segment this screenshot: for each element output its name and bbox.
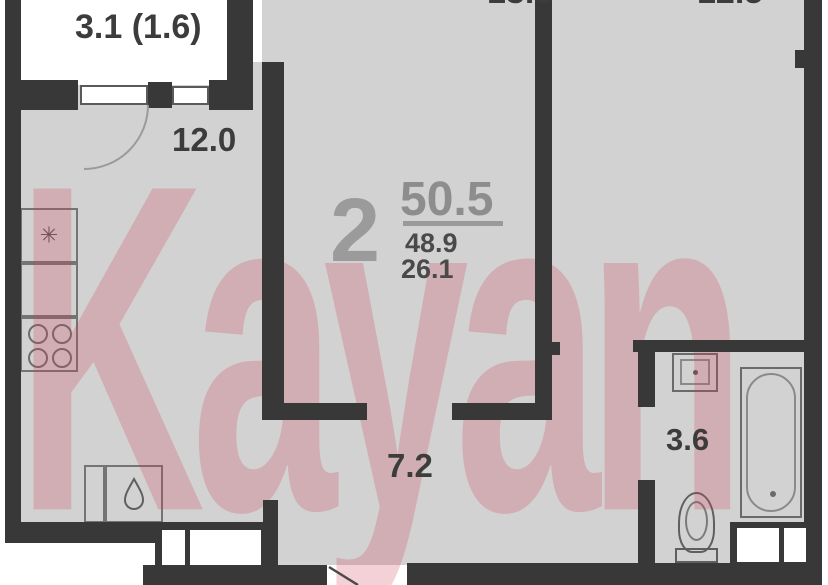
kitchen-sink-unit: ✳: [20, 208, 78, 263]
door-jamb: [552, 342, 560, 355]
vestibule-opening: [190, 530, 261, 565]
wall: [795, 50, 822, 68]
lower-sink-unit: [105, 465, 163, 523]
entrance-opening: [327, 565, 407, 585]
room-right-label: 12.5: [697, 0, 763, 9]
toilet-icon: [678, 492, 715, 553]
balcony-label: 3.1 (1.6): [75, 10, 202, 44]
wall: [535, 0, 552, 420]
wall: [227, 0, 253, 80]
floor-plan: ✳ Kayan: [0, 0, 828, 585]
wall: [209, 80, 253, 110]
bathtub-icon: [740, 367, 802, 518]
area-underline: [403, 221, 503, 226]
outside-below-kitchen: [21, 543, 155, 585]
area-living: 26.1: [401, 256, 454, 283]
outside-right-edge: [822, 0, 828, 585]
toilet-tank: [675, 548, 718, 563]
bathroom-window: [737, 528, 779, 562]
vestibule-opening: [162, 530, 185, 565]
star-drain-icon: ✳: [40, 222, 58, 248]
kitchen-label: 12.0: [172, 123, 236, 156]
wall: [148, 82, 172, 108]
wall: [633, 340, 822, 352]
wall: [804, 0, 822, 583]
room-center-label: 13.6: [487, 0, 553, 9]
rooms-count: 2: [330, 186, 380, 276]
balcony-window: [172, 86, 209, 105]
water-drop-icon: [122, 477, 146, 511]
area-secondary: 48.9: [405, 230, 458, 257]
shaft-strip: [253, 0, 262, 62]
wall: [638, 352, 655, 407]
wall: [5, 80, 78, 110]
wall: [143, 565, 327, 585]
wash-basin-icon: [672, 353, 718, 392]
lower-counter-unit: [84, 465, 105, 523]
kitchen-counter-unit: [20, 263, 78, 317]
balcony-door-leaf: [80, 85, 148, 105]
bathroom-label: 3.6: [666, 424, 709, 455]
stove: [20, 317, 78, 372]
bathroom-window: [784, 528, 806, 562]
wall: [262, 62, 284, 408]
wall: [262, 403, 367, 420]
area-total: 50.5: [400, 176, 493, 224]
hallway-label: 7.2: [387, 449, 433, 482]
four-burner-stove-icon: [28, 324, 48, 344]
